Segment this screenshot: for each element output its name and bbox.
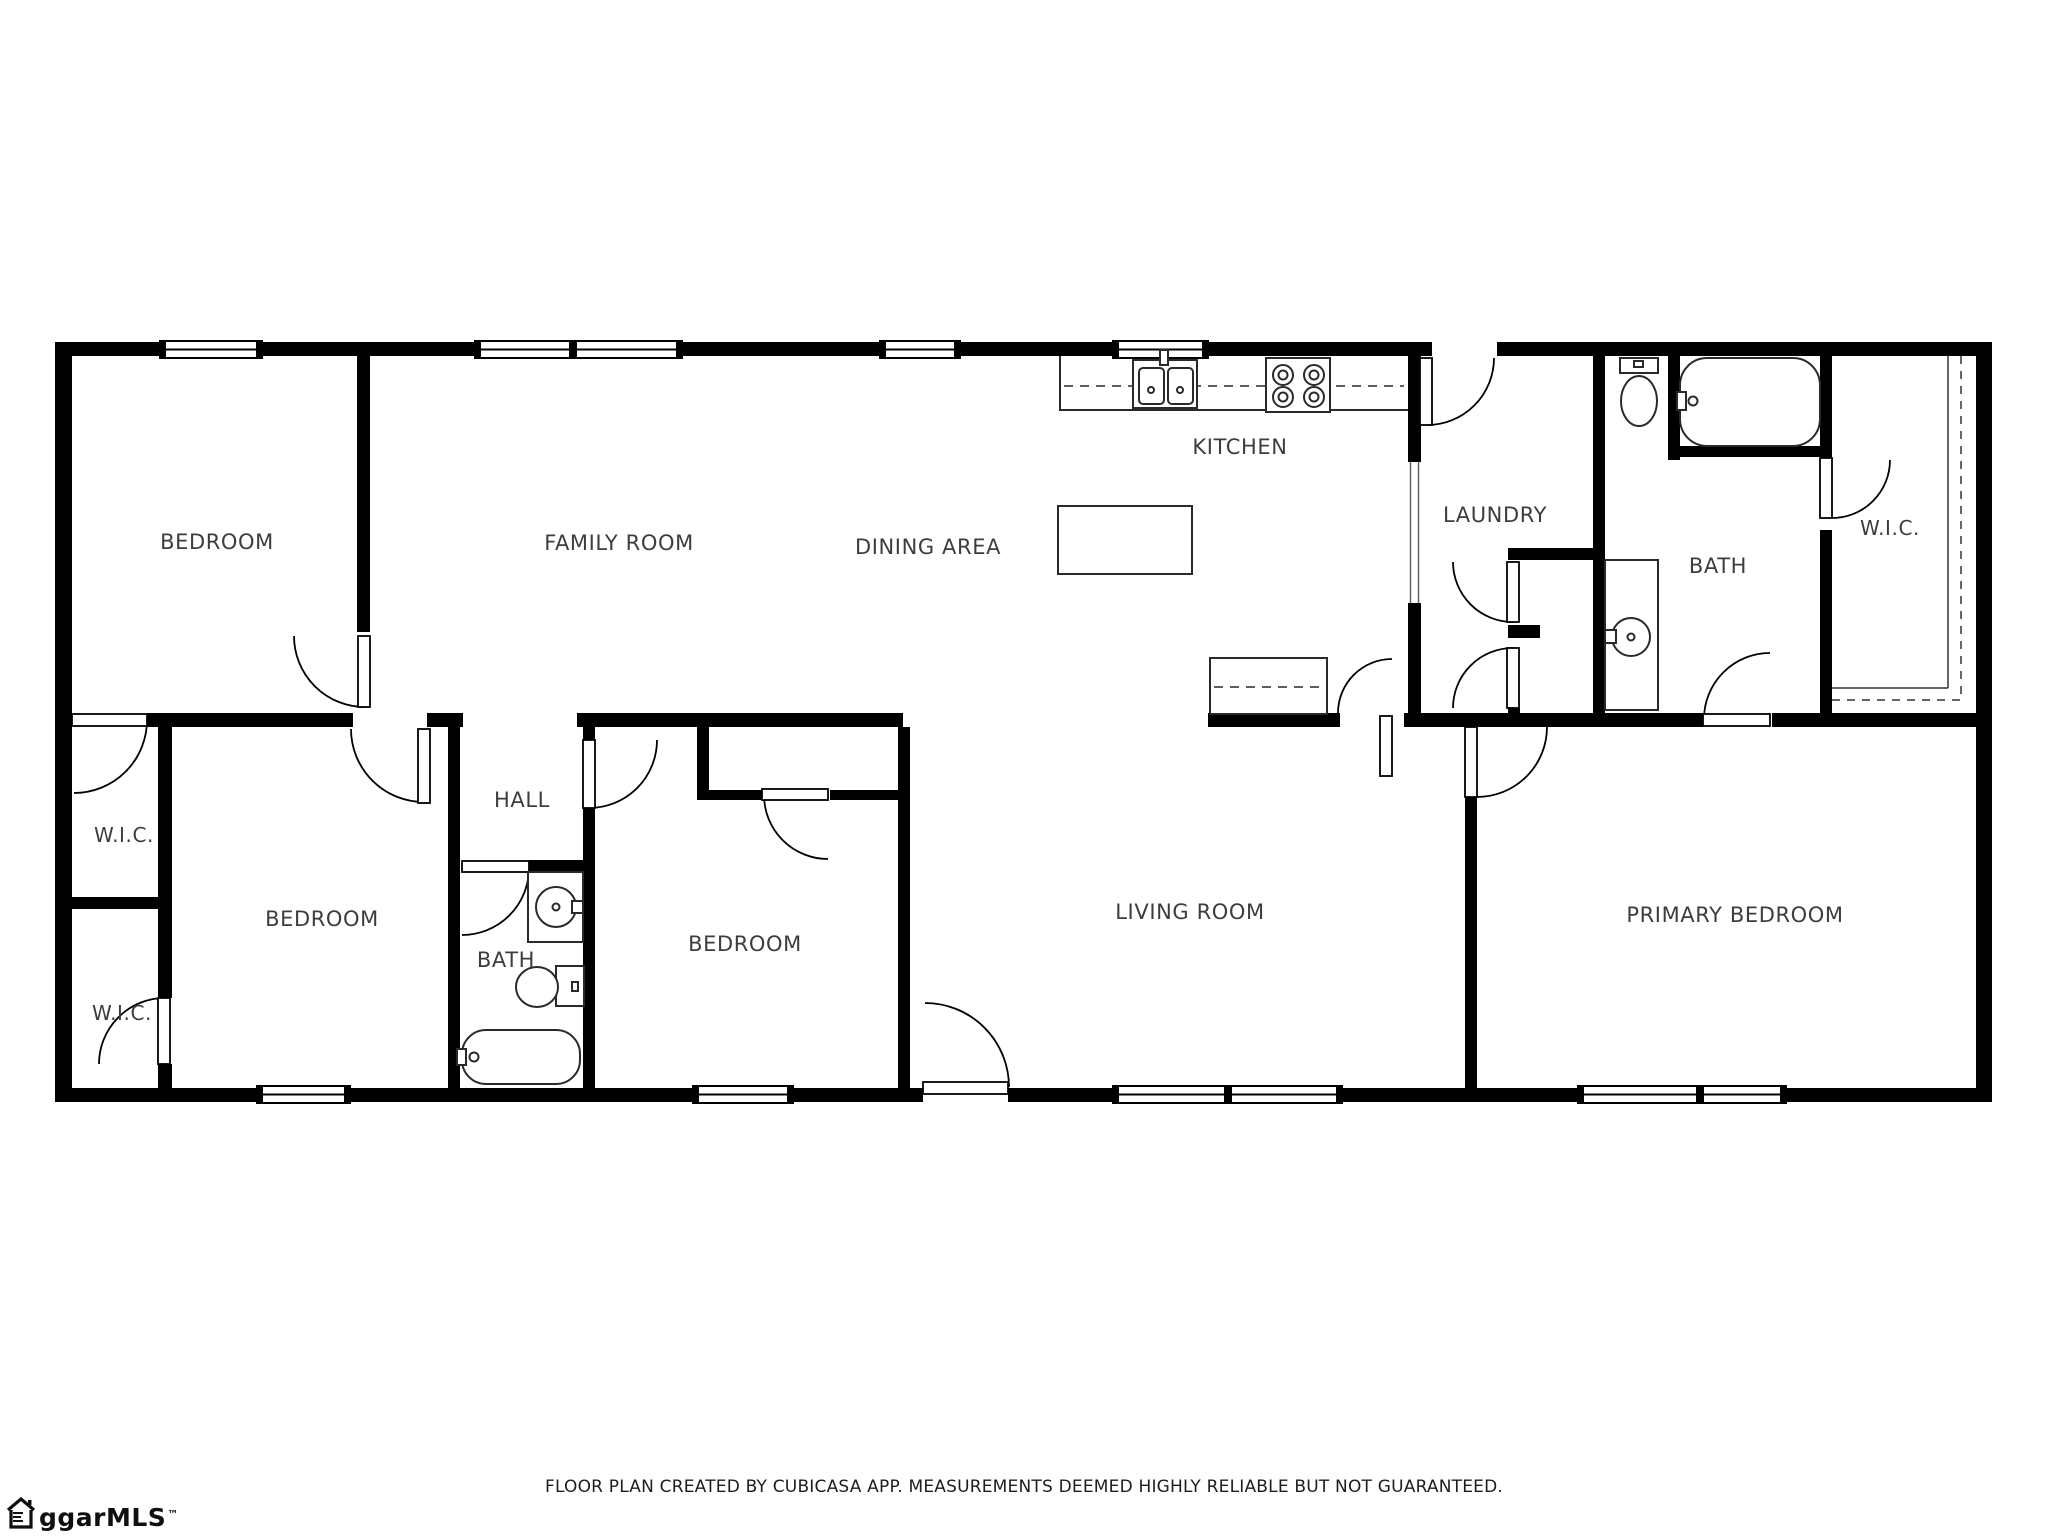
vanity-sink-icon	[528, 872, 583, 942]
door-wic-upper-left	[72, 714, 147, 793]
door-bath-top-to-wic	[1820, 458, 1890, 518]
kitchen-fixtures	[1058, 350, 1408, 714]
toilet-icon	[1620, 358, 1658, 426]
toilet-icon	[516, 966, 584, 1007]
window-bedroom-top-left	[160, 341, 262, 358]
room-label-wic-lower-left: W.I.C.	[92, 1001, 152, 1025]
room-label-bedroom-middle: BEDROOM	[688, 932, 802, 956]
door-bath-hall	[462, 861, 529, 935]
stove-icon	[1266, 358, 1330, 412]
door-laundry-closet-lower	[1453, 648, 1519, 708]
floor-plan-canvas: BEDROOM FAMILY ROOM DINING AREA KITCHEN …	[0, 0, 2048, 1536]
vanity-sink-icon	[1605, 560, 1658, 710]
door-laundry-closet-upper	[1453, 562, 1519, 622]
footer-disclaimer: FLOOR PLAN CREATED BY CUBICASA APP. MEAS…	[545, 1477, 1503, 1497]
room-label-dining-area: DINING AREA	[855, 535, 1001, 559]
dishwasher-cabinet	[1210, 658, 1327, 714]
room-label-bedroom-top-left: BEDROOM	[160, 530, 274, 554]
room-label-bath-top: BATH	[1689, 554, 1747, 578]
kitchen-counter	[1060, 356, 1408, 410]
room-label-bath-hall: BATH	[477, 948, 535, 972]
logo-trademark: ™	[167, 1509, 178, 1520]
room-label-wic-upper-left: W.I.C.	[94, 823, 154, 847]
room-label-hall: HALL	[494, 788, 550, 812]
kitchen-island	[1058, 506, 1192, 574]
floor-plan-svg	[0, 0, 2048, 1536]
window-living-room	[1113, 1086, 1342, 1103]
room-label-primary-bedroom: PRIMARY BEDROOM	[1626, 903, 1843, 927]
room-label-family-room: FAMILY ROOM	[544, 531, 694, 555]
hall-bath-fixtures	[457, 872, 584, 1084]
window-bedroom-middle	[693, 1086, 793, 1103]
logo-text: ggarMLS	[39, 1505, 166, 1530]
door-closet-bedroom-middle	[762, 789, 828, 859]
window-family-room	[475, 341, 682, 358]
top-bath-fixtures	[1605, 358, 1820, 710]
room-label-kitchen: KITCHEN	[1192, 435, 1287, 459]
room-label-wic-top-right: W.I.C.	[1860, 516, 1920, 540]
room-label-bedroom-left: BEDROOM	[265, 907, 379, 931]
door-bedroom-top-left	[294, 636, 370, 707]
door-bedroom-left	[351, 729, 430, 803]
mls-logo: ggarMLS ™	[4, 1496, 178, 1530]
bathtub-icon	[457, 1030, 580, 1084]
room-label-laundry: LAUNDRY	[1443, 503, 1547, 527]
door-bath-top-entry	[1703, 653, 1770, 726]
house-logo-icon	[4, 1496, 38, 1530]
door-living-room-exterior	[923, 1003, 1009, 1094]
door-bedroom-middle	[583, 740, 657, 808]
window-dining-area	[880, 341, 960, 358]
window-primary-bedroom	[1578, 1086, 1786, 1103]
window-bedroom-left	[257, 1086, 350, 1103]
door-primary-bedroom	[1465, 727, 1547, 797]
door-laundry-entry	[1420, 358, 1494, 425]
room-label-living-room: LIVING ROOM	[1115, 900, 1264, 924]
bathtub-icon	[1677, 358, 1820, 446]
